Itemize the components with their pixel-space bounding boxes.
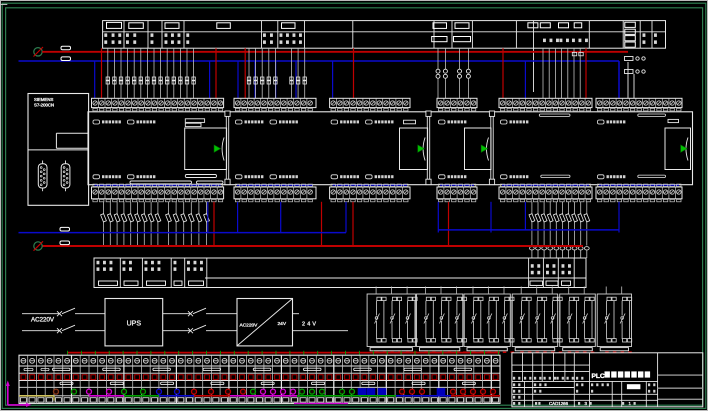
svg-text:24V: 24V	[302, 322, 318, 328]
svg-text:CAD1266: CAD1266	[549, 401, 569, 406]
svg-text:PLC: PLC	[592, 373, 605, 380]
svg-text:AC220V: AC220V	[240, 323, 259, 329]
svg-text:S7-200CN: S7-200CN	[34, 102, 54, 107]
svg-text:AC220V: AC220V	[31, 317, 55, 324]
svg-text:SIEMENS: SIEMENS	[34, 97, 53, 102]
svg-text:24V: 24V	[278, 321, 287, 327]
svg-text:UPS: UPS	[127, 321, 142, 328]
